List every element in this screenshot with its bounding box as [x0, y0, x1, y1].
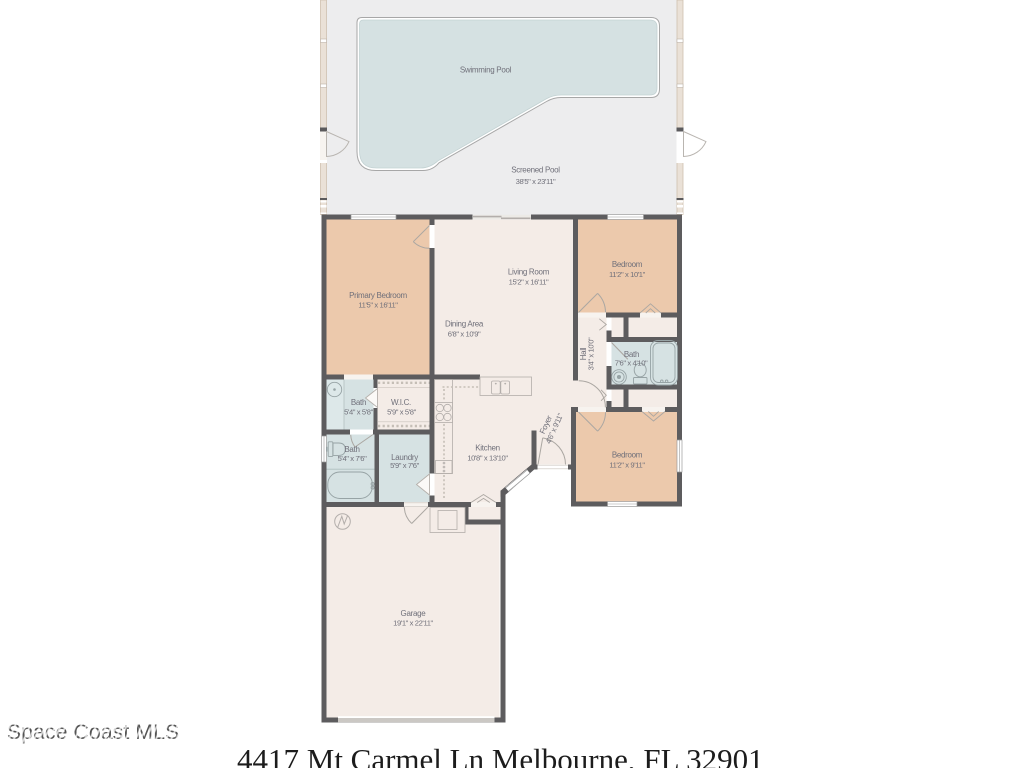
- svg-text:Screened Pool: Screened Pool: [511, 166, 560, 175]
- svg-text:5'9" x 5'8": 5'9" x 5'8": [387, 407, 417, 416]
- svg-text:Bath: Bath: [351, 398, 366, 407]
- svg-text:19'1" x 22'11": 19'1" x 22'11": [393, 619, 433, 628]
- svg-text:5'9" x 7'6": 5'9" x 7'6": [390, 461, 420, 470]
- svg-text:11'2" x 9'11": 11'2" x 9'11": [609, 460, 645, 469]
- svg-text:5'4" x 5'8": 5'4" x 5'8": [344, 407, 374, 416]
- svg-text:5'4" x 7'6": 5'4" x 7'6": [338, 454, 368, 463]
- svg-text:Kitchen: Kitchen: [475, 444, 500, 453]
- svg-text:6'8" x 10'9": 6'8" x 10'9": [448, 330, 481, 339]
- svg-text:Garage: Garage: [401, 609, 427, 618]
- svg-text:W.I.C.: W.I.C.: [391, 398, 411, 407]
- svg-text:3'4" x 10'0": 3'4" x 10'0": [586, 337, 595, 370]
- svg-text:38'5" x 23'11": 38'5" x 23'11": [516, 177, 556, 186]
- svg-text:Bedroom: Bedroom: [612, 260, 643, 269]
- svg-text:10'8" x 13'10": 10'8" x 13'10": [467, 453, 508, 462]
- svg-text:15'2" x 16'11": 15'2" x 16'11": [509, 278, 549, 287]
- svg-text:Living Room: Living Room: [508, 268, 550, 277]
- svg-text:Swimming Pool: Swimming Pool: [460, 66, 512, 75]
- svg-text:7'6" x 4'10": 7'6" x 4'10": [615, 359, 648, 368]
- svg-text:Primary Bedroom: Primary Bedroom: [349, 291, 407, 300]
- svg-text:Bedroom: Bedroom: [612, 450, 643, 459]
- svg-text:11'2" x 10'1": 11'2" x 10'1": [609, 270, 646, 279]
- svg-text:Bath: Bath: [344, 445, 359, 454]
- svg-text:Dining Area: Dining Area: [445, 320, 484, 329]
- svg-text:11'5" x 16'11": 11'5" x 16'11": [358, 301, 398, 310]
